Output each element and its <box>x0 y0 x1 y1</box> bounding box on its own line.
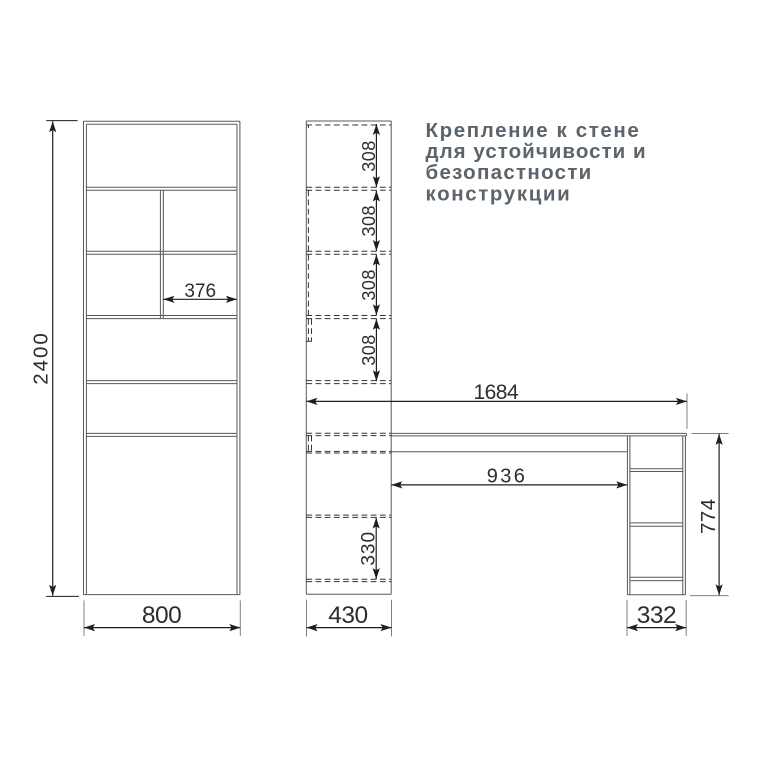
svg-text:конструкции: конструкции <box>426 182 572 205</box>
svg-text:376: 376 <box>184 281 216 302</box>
svg-text:1684: 1684 <box>473 381 519 404</box>
svg-text:для устойчивости и: для устойчивости и <box>426 140 647 163</box>
svg-text:332: 332 <box>637 602 676 629</box>
svg-text:774: 774 <box>697 498 720 534</box>
svg-text:800: 800 <box>142 602 181 629</box>
svg-text:308: 308 <box>359 140 379 172</box>
svg-text:2400: 2400 <box>30 331 53 385</box>
svg-text:308: 308 <box>359 205 379 237</box>
svg-text:308: 308 <box>359 334 379 366</box>
svg-text:безопастности: безопастности <box>426 161 593 184</box>
svg-text:Крепление к стене: Крепление к стене <box>426 119 641 142</box>
svg-text:936: 936 <box>487 465 528 487</box>
svg-text:308: 308 <box>359 269 379 301</box>
svg-text:330: 330 <box>359 531 380 566</box>
svg-text:430: 430 <box>328 602 367 629</box>
